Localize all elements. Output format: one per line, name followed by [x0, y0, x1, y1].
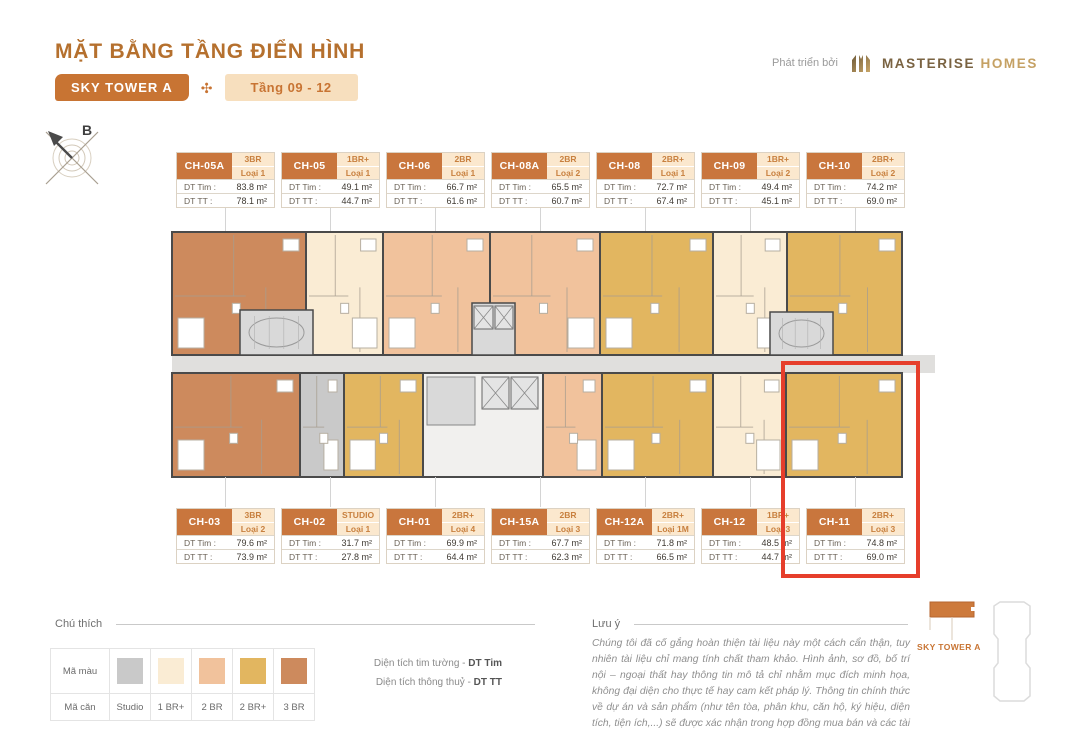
- dt-tim-value: 74.2 m²: [866, 182, 897, 192]
- dt-tt-value: 64.4 m²: [446, 552, 477, 562]
- dt-tim-value: 67.7 m²: [551, 538, 582, 548]
- plan-furniture: [350, 440, 375, 470]
- plan-furniture: [608, 440, 634, 470]
- plan-furniture: [583, 380, 595, 392]
- floor-plan-svg: [0, 0, 1080, 734]
- dt-tt-value: 73.9 m²: [236, 552, 267, 562]
- unit-code: CH-15A: [492, 509, 547, 535]
- plan-furniture: [652, 433, 660, 443]
- plan-furniture: [606, 318, 632, 348]
- unit-variant: Loại 3: [862, 523, 904, 536]
- plan-utility-room: [427, 377, 475, 425]
- dt-tim-value: 49.4 m²: [761, 182, 792, 192]
- dt-tt-value: 44.7 m²: [341, 196, 372, 206]
- dt-tim-value: 66.7 m²: [446, 182, 477, 192]
- legend-item-label: Studio: [110, 694, 151, 721]
- unit-code: CH-05: [282, 153, 337, 179]
- plan-furniture: [651, 303, 659, 313]
- legend-item-label: 1 BR+: [151, 694, 192, 721]
- unit-type: STUDIO: [337, 509, 379, 523]
- unit-type: 1BR+: [337, 153, 379, 167]
- unit-type: 2BR: [547, 153, 589, 167]
- plan-furniture: [746, 303, 754, 313]
- plan-furniture: [341, 303, 349, 313]
- unit-variant: Loại 1M: [652, 523, 694, 536]
- plan-furniture: [838, 433, 846, 443]
- legend-item-label: 2 BR+: [233, 694, 274, 721]
- unit-code: CH-03: [177, 509, 232, 535]
- legend-swatch-cell: [192, 649, 233, 694]
- unit-type: 2BR+: [652, 509, 694, 523]
- unit-variant: Loại 3: [757, 523, 799, 536]
- dt-tim-label: DT Tim :: [814, 538, 846, 548]
- unit-variant: Loại 3: [547, 523, 589, 536]
- unit-label-CH-05: CH-05 1BR+ Loại 1 DT Tim : 49.1 m² DT TT…: [281, 152, 380, 208]
- unit-variant: Loại 2: [232, 523, 274, 536]
- dt-tt-value: 66.5 m²: [656, 552, 687, 562]
- unit-label-CH-10: CH-10 2BR+ Loại 2 DT Tim : 74.2 m² DT TT…: [806, 152, 905, 208]
- unit-label-CH-12A: CH-12A 2BR+ Loại 1M DT Tim : 71.8 m² DT …: [596, 508, 695, 564]
- unit-type: 3BR: [232, 153, 274, 167]
- dt-tt-value: 60.7 m²: [551, 196, 582, 206]
- unit-label-CH-08A: CH-08A 2BR Loại 2 DT Tim : 65.5 m² DT TT…: [491, 152, 590, 208]
- plan-furniture: [765, 239, 780, 251]
- legend-swatch: [240, 658, 266, 684]
- unit-label-CH-05A: CH-05A 3BR Loại 1 DT Tim : 83.8 m² DT TT…: [176, 152, 275, 208]
- dt-tt-label: DT TT :: [394, 552, 422, 562]
- dt-tim-label: DT Tim :: [604, 538, 636, 548]
- unit-code: CH-05A: [177, 153, 232, 179]
- dt-tim-label: DT Tim :: [814, 182, 846, 192]
- unit-variant: Loại 2: [862, 167, 904, 180]
- unit-code: CH-12: [702, 509, 757, 535]
- dt-tim-label: DT Tim :: [184, 538, 216, 548]
- dt-tt-value: 67.4 m²: [656, 196, 687, 206]
- area-definitions: Diện tích tim tường - DT Tim Diện tích t…: [330, 655, 502, 692]
- unit-variant: Loại 1: [652, 167, 694, 180]
- legend-swatch: [281, 658, 307, 684]
- legend-swatch-cell: [110, 649, 151, 694]
- legend-table: Mã màu Mã căn Studio1 BR+2 BR2 BR+3 BR: [50, 648, 315, 721]
- dt-tim-label: DT Tim :: [604, 182, 636, 192]
- plan-furniture: [792, 440, 818, 470]
- dt-tim-label: DT Tim :: [394, 538, 426, 548]
- legend-item-label: 2 BR: [192, 694, 233, 721]
- legend-swatch: [158, 658, 184, 684]
- unit-code: CH-11: [807, 509, 862, 535]
- unit-variant: Loại 4: [442, 523, 484, 536]
- unit-type: 2BR+: [862, 509, 904, 523]
- dt-tt-label: DT TT :: [184, 552, 212, 562]
- unit-variant: Loại 2: [547, 167, 589, 180]
- plan-furniture: [540, 303, 548, 313]
- dt-tt-label: DT TT :: [604, 552, 632, 562]
- plan-furniture: [178, 318, 204, 348]
- unit-type: 2BR: [547, 509, 589, 523]
- unit-type: 3BR: [232, 509, 274, 523]
- dt-tt-label: DT TT :: [289, 196, 317, 206]
- unit-type: 2BR+: [862, 153, 904, 167]
- dt-tim-label: DT Tim :: [499, 182, 531, 192]
- dt-tim-value: 69.9 m²: [446, 538, 477, 548]
- unit-type: 2BR+: [442, 509, 484, 523]
- dt-tt-label: DT TT :: [814, 196, 842, 206]
- legend-swatch-cell: [151, 649, 192, 694]
- dt-tim-value: 65.5 m²: [551, 182, 582, 192]
- dt-tt-label: DT TT :: [289, 552, 317, 562]
- unit-code: CH-02: [282, 509, 337, 535]
- plan-furniture: [230, 433, 238, 443]
- plan-furniture: [380, 433, 388, 443]
- dt-tt-label: DT TT :: [499, 196, 527, 206]
- plan-furniture: [328, 380, 337, 392]
- unit-code: CH-08A: [492, 153, 547, 179]
- plan-furniture: [389, 318, 415, 348]
- dt-tt-value: 27.8 m²: [341, 552, 372, 562]
- plan-furniture: [400, 380, 416, 392]
- plan-furniture: [690, 380, 706, 392]
- unit-label-CH-08: CH-08 2BR+ Loại 1 DT Tim : 72.7 m² DT TT…: [596, 152, 695, 208]
- plan-furniture: [277, 380, 293, 392]
- plan-furniture: [757, 440, 780, 470]
- dt-tt-label: DT TT :: [394, 196, 422, 206]
- dt-tt-label: DT TT :: [604, 196, 632, 206]
- unit-label-CH-15A: CH-15A 2BR Loại 3 DT Tim : 67.7 m² DT TT…: [491, 508, 590, 564]
- unit-label-CH-12: CH-12 1BR+ Loại 3 DT Tim : 48.5 m² DT TT…: [701, 508, 800, 564]
- dt-tt-value: 78.1 m²: [236, 196, 267, 206]
- unit-code: CH-10: [807, 153, 862, 179]
- dt-tim-label: DT Tim :: [184, 182, 216, 192]
- unit-variant: Loại 1: [337, 523, 379, 536]
- plan-furniture: [178, 440, 204, 470]
- dt-tt-value: 44.7 m²: [761, 552, 792, 562]
- dt-tt-value: 61.6 m²: [446, 196, 477, 206]
- unit-code: CH-01: [387, 509, 442, 535]
- dt-tim-label: DT Tim :: [709, 182, 741, 192]
- unit-label-CH-01: CH-01 2BR+ Loại 4 DT Tim : 69.9 m² DT TT…: [386, 508, 485, 564]
- plan-stair-core: [240, 310, 313, 355]
- dt-tim-label: DT Tim :: [289, 182, 321, 192]
- dt-tt-value: 45.1 m²: [761, 196, 792, 206]
- unit-variant: Loại 2: [757, 167, 799, 180]
- dt-tim-value: 83.8 m²: [236, 182, 267, 192]
- dt-tim-definition: Diện tích tim tường - DT Tim: [330, 655, 502, 674]
- unit-label-CH-09: CH-09 1BR+ Loại 2 DT Tim : 49.4 m² DT TT…: [701, 152, 800, 208]
- unit-type: 2BR+: [652, 153, 694, 167]
- dt-tim-value: 79.6 m²: [236, 538, 267, 548]
- dt-tt-value: 69.0 m²: [866, 552, 897, 562]
- dt-tim-value: 71.8 m²: [656, 538, 687, 548]
- plan-corridor: [172, 355, 935, 373]
- legend-row-label: Mã màu: [51, 649, 110, 694]
- plan-furniture: [467, 239, 483, 251]
- dt-tt-value: 62.3 m²: [551, 552, 582, 562]
- dt-tt-label: DT TT :: [499, 552, 527, 562]
- unit-type: 1BR+: [757, 509, 799, 523]
- dt-tt-label: DT TT :: [709, 552, 737, 562]
- plan-furniture: [568, 318, 594, 348]
- dt-tt-definition: Diện tích thông thuỷ - DT TT: [330, 674, 502, 693]
- dt-tim-label: DT Tim :: [289, 538, 321, 548]
- unit-label-CH-02: CH-02 STUDIO Loại 1 DT Tim : 31.7 m² DT …: [281, 508, 380, 564]
- dt-tt-label: DT TT :: [814, 552, 842, 562]
- unit-code: CH-12A: [597, 509, 652, 535]
- plan-furniture: [577, 440, 596, 470]
- unit-variant: Loại 1: [337, 167, 379, 180]
- legend-swatch: [199, 658, 225, 684]
- dt-tim-value: 48.5 m²: [761, 538, 792, 548]
- unit-variant: Loại 1: [442, 167, 484, 180]
- dt-tt-label: DT TT :: [709, 196, 737, 206]
- plan-furniture: [361, 239, 376, 251]
- plan-furniture: [232, 303, 240, 313]
- unit-code: CH-06: [387, 153, 442, 179]
- plan-furniture: [879, 239, 895, 251]
- dt-tim-label: DT Tim :: [394, 182, 426, 192]
- plan-furniture: [839, 303, 847, 313]
- unit-label-CH-03: CH-03 3BR Loại 2 DT Tim : 79.6 m² DT TT …: [176, 508, 275, 564]
- dt-tt-value: 69.0 m²: [866, 196, 897, 206]
- plan-furniture: [879, 380, 895, 392]
- plan-furniture: [690, 239, 706, 251]
- plan-furniture: [324, 440, 338, 470]
- unit-type: 2BR: [442, 153, 484, 167]
- dt-tim-value: 49.1 m²: [341, 182, 372, 192]
- plan-furniture: [764, 380, 779, 392]
- legend-swatch: [117, 658, 143, 684]
- plan-furniture: [577, 239, 593, 251]
- unit-type: 1BR+: [757, 153, 799, 167]
- unit-label-CH-06: CH-06 2BR Loại 1 DT Tim : 66.7 m² DT TT …: [386, 152, 485, 208]
- plan-furniture: [431, 303, 439, 313]
- unit-code: CH-09: [702, 153, 757, 179]
- legend-item-label: 3 BR: [274, 694, 315, 721]
- unit-label-CH-11: CH-11 2BR+ Loại 3 DT Tim : 74.8 m² DT TT…: [806, 508, 905, 564]
- floor-plan-page: MẶT BẰNG TẦNG ĐIỂN HÌNH SKY TOWER A ✣ Tầ…: [0, 0, 1080, 734]
- legend-swatch-cell: [233, 649, 274, 694]
- dt-tim-label: DT Tim :: [709, 538, 741, 548]
- plan-furniture: [352, 318, 377, 348]
- dt-tim-value: 31.7 m²: [341, 538, 372, 548]
- unit-variant: Loại 1: [232, 167, 274, 180]
- plan-furniture: [283, 239, 299, 251]
- unit-code: CH-08: [597, 153, 652, 179]
- legend-row-label: Mã căn: [51, 694, 110, 721]
- dt-tim-label: DT Tim :: [499, 538, 531, 548]
- plan-furniture: [570, 433, 578, 443]
- legend-swatch-cell: [274, 649, 315, 694]
- plan-furniture: [746, 433, 754, 443]
- dt-tim-value: 74.8 m²: [866, 538, 897, 548]
- dt-tt-label: DT TT :: [184, 196, 212, 206]
- plan-furniture: [320, 433, 328, 443]
- dt-tim-value: 72.7 m²: [656, 182, 687, 192]
